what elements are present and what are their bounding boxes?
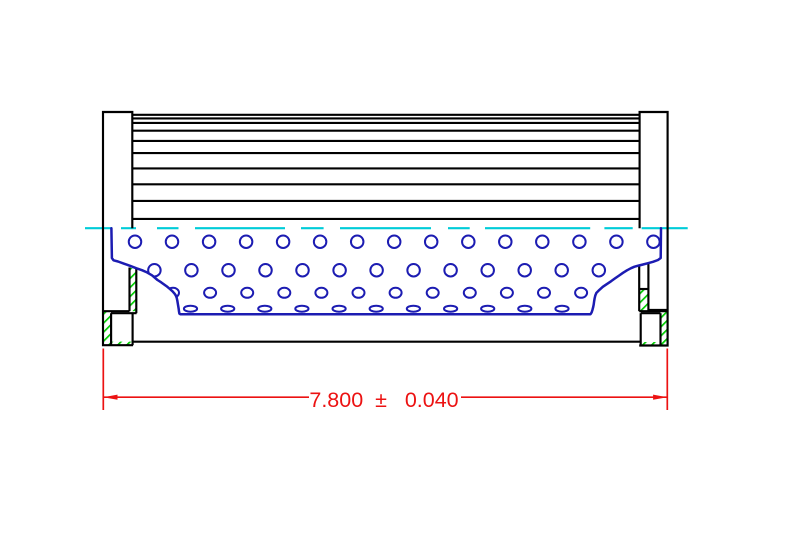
svg-text:7.800 ± 0.040: 7.800 ± 0.040	[309, 388, 458, 412]
